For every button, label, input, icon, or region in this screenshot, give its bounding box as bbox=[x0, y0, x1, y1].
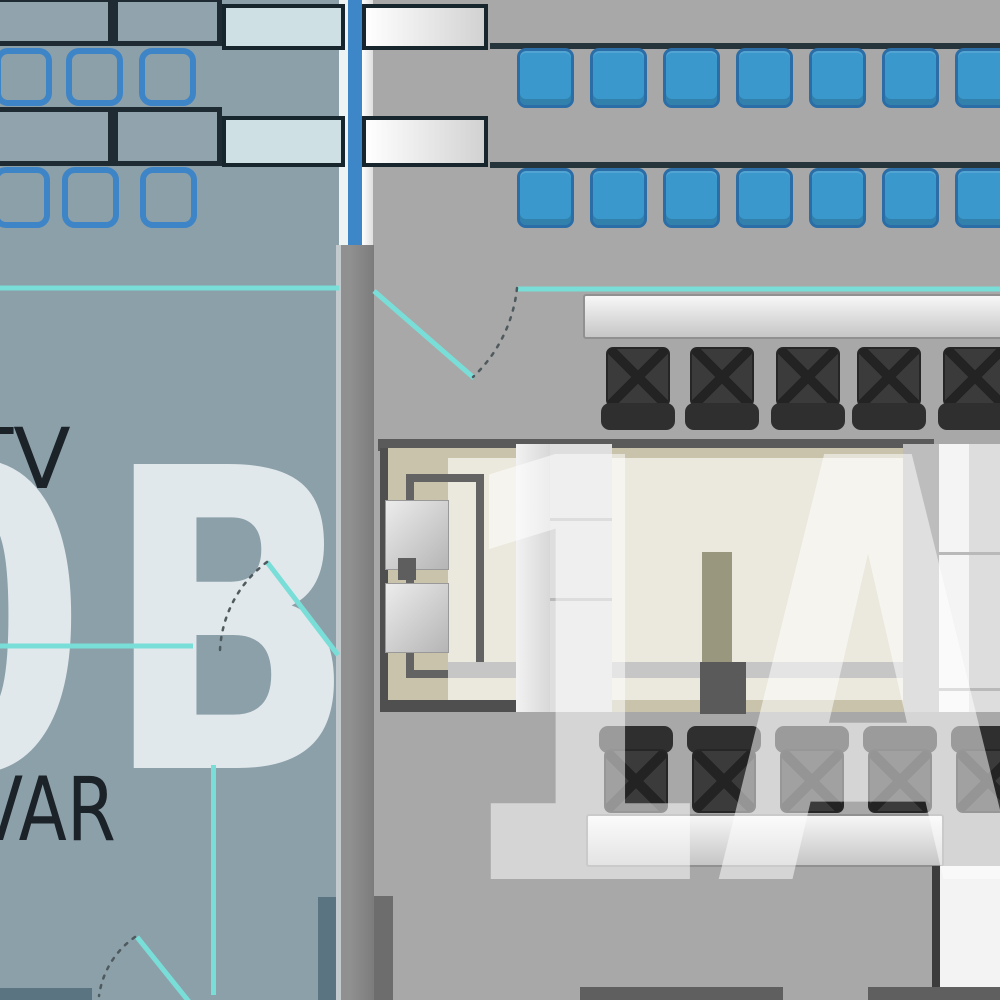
door-leaf bbox=[374, 291, 474, 378]
chair-outline bbox=[66, 48, 123, 106]
chair-outline bbox=[62, 167, 119, 228]
blue-seat bbox=[663, 48, 720, 108]
blue-seat bbox=[809, 48, 866, 108]
door-swing-arc bbox=[473, 288, 517, 377]
blue-seat bbox=[517, 168, 574, 228]
armrest-notch bbox=[398, 558, 416, 580]
dark-chair-seat bbox=[606, 347, 670, 407]
dark-chair-backrest bbox=[601, 403, 675, 430]
sofa-seam bbox=[939, 688, 1000, 691]
table bbox=[0, 107, 113, 166]
blue-seat bbox=[882, 48, 939, 108]
wall-segment-dark bbox=[374, 896, 393, 1000]
sofa-section bbox=[550, 444, 612, 712]
dark-chair-backrest bbox=[771, 403, 845, 430]
dark-chair-seat bbox=[776, 347, 840, 407]
wall-segment-bottom bbox=[0, 988, 92, 1000]
chair-outline bbox=[140, 167, 197, 228]
sofa-seam bbox=[550, 518, 612, 521]
sofa-section bbox=[939, 444, 1000, 712]
dark-chair-backrest bbox=[938, 403, 1000, 430]
dark-chair-backrest bbox=[685, 403, 759, 430]
side-table bbox=[362, 4, 488, 50]
chair-outline bbox=[0, 167, 50, 228]
glass-wall-blue-line bbox=[348, 0, 362, 247]
sofa-section bbox=[516, 444, 550, 712]
bottom-wall-bar bbox=[580, 987, 783, 1000]
partition-wall bbox=[336, 245, 374, 1000]
dark-chair-seat bbox=[692, 749, 756, 813]
blue-seat bbox=[517, 48, 574, 108]
blue-seat bbox=[809, 168, 866, 228]
dark-chair-seat bbox=[956, 749, 1000, 813]
cabinet-divider bbox=[932, 866, 940, 988]
sofa-seam bbox=[939, 552, 1000, 555]
chair-outline bbox=[139, 48, 196, 106]
dark-chair-seat bbox=[857, 347, 921, 407]
side-table bbox=[222, 116, 345, 167]
lounge-edge-strip bbox=[380, 700, 530, 712]
dark-chair-seat bbox=[690, 347, 754, 407]
dark-chair-seat bbox=[868, 749, 932, 813]
blue-seat bbox=[590, 168, 647, 228]
blue-seat bbox=[955, 48, 1000, 108]
dark-chair-seat bbox=[780, 749, 844, 813]
blue-seat bbox=[663, 168, 720, 228]
room-label-var: VAR bbox=[0, 766, 116, 854]
blue-seat bbox=[736, 48, 793, 108]
blue-seat bbox=[590, 48, 647, 108]
armchair-cushion bbox=[385, 500, 449, 570]
blue-seat bbox=[882, 168, 939, 228]
floor-plan-scene: 0B 1A TV VAR bbox=[0, 0, 1000, 1000]
dark-chair-seat bbox=[943, 347, 1000, 407]
dark-chair-backrest bbox=[852, 403, 926, 430]
dark-chair-seat bbox=[604, 749, 668, 813]
cabinet-white bbox=[940, 866, 1000, 988]
sofa-section bbox=[903, 444, 939, 712]
table bbox=[113, 0, 222, 46]
table bbox=[113, 107, 222, 166]
wall-segment-slate bbox=[318, 897, 336, 1000]
bench-bottom bbox=[586, 814, 944, 867]
bench-top bbox=[583, 294, 1000, 339]
armchair-cushion bbox=[385, 583, 449, 653]
side-table bbox=[222, 4, 345, 50]
chair-outline bbox=[0, 48, 52, 106]
sofa-seam bbox=[550, 598, 612, 601]
blue-seat bbox=[736, 168, 793, 228]
bottom-wall-bar bbox=[868, 987, 1000, 1000]
blue-seat bbox=[955, 168, 1000, 228]
side-table bbox=[362, 116, 488, 167]
sofa-gap-shadow bbox=[700, 662, 746, 714]
room-label-tv: TV bbox=[0, 417, 71, 501]
table bbox=[0, 0, 113, 46]
